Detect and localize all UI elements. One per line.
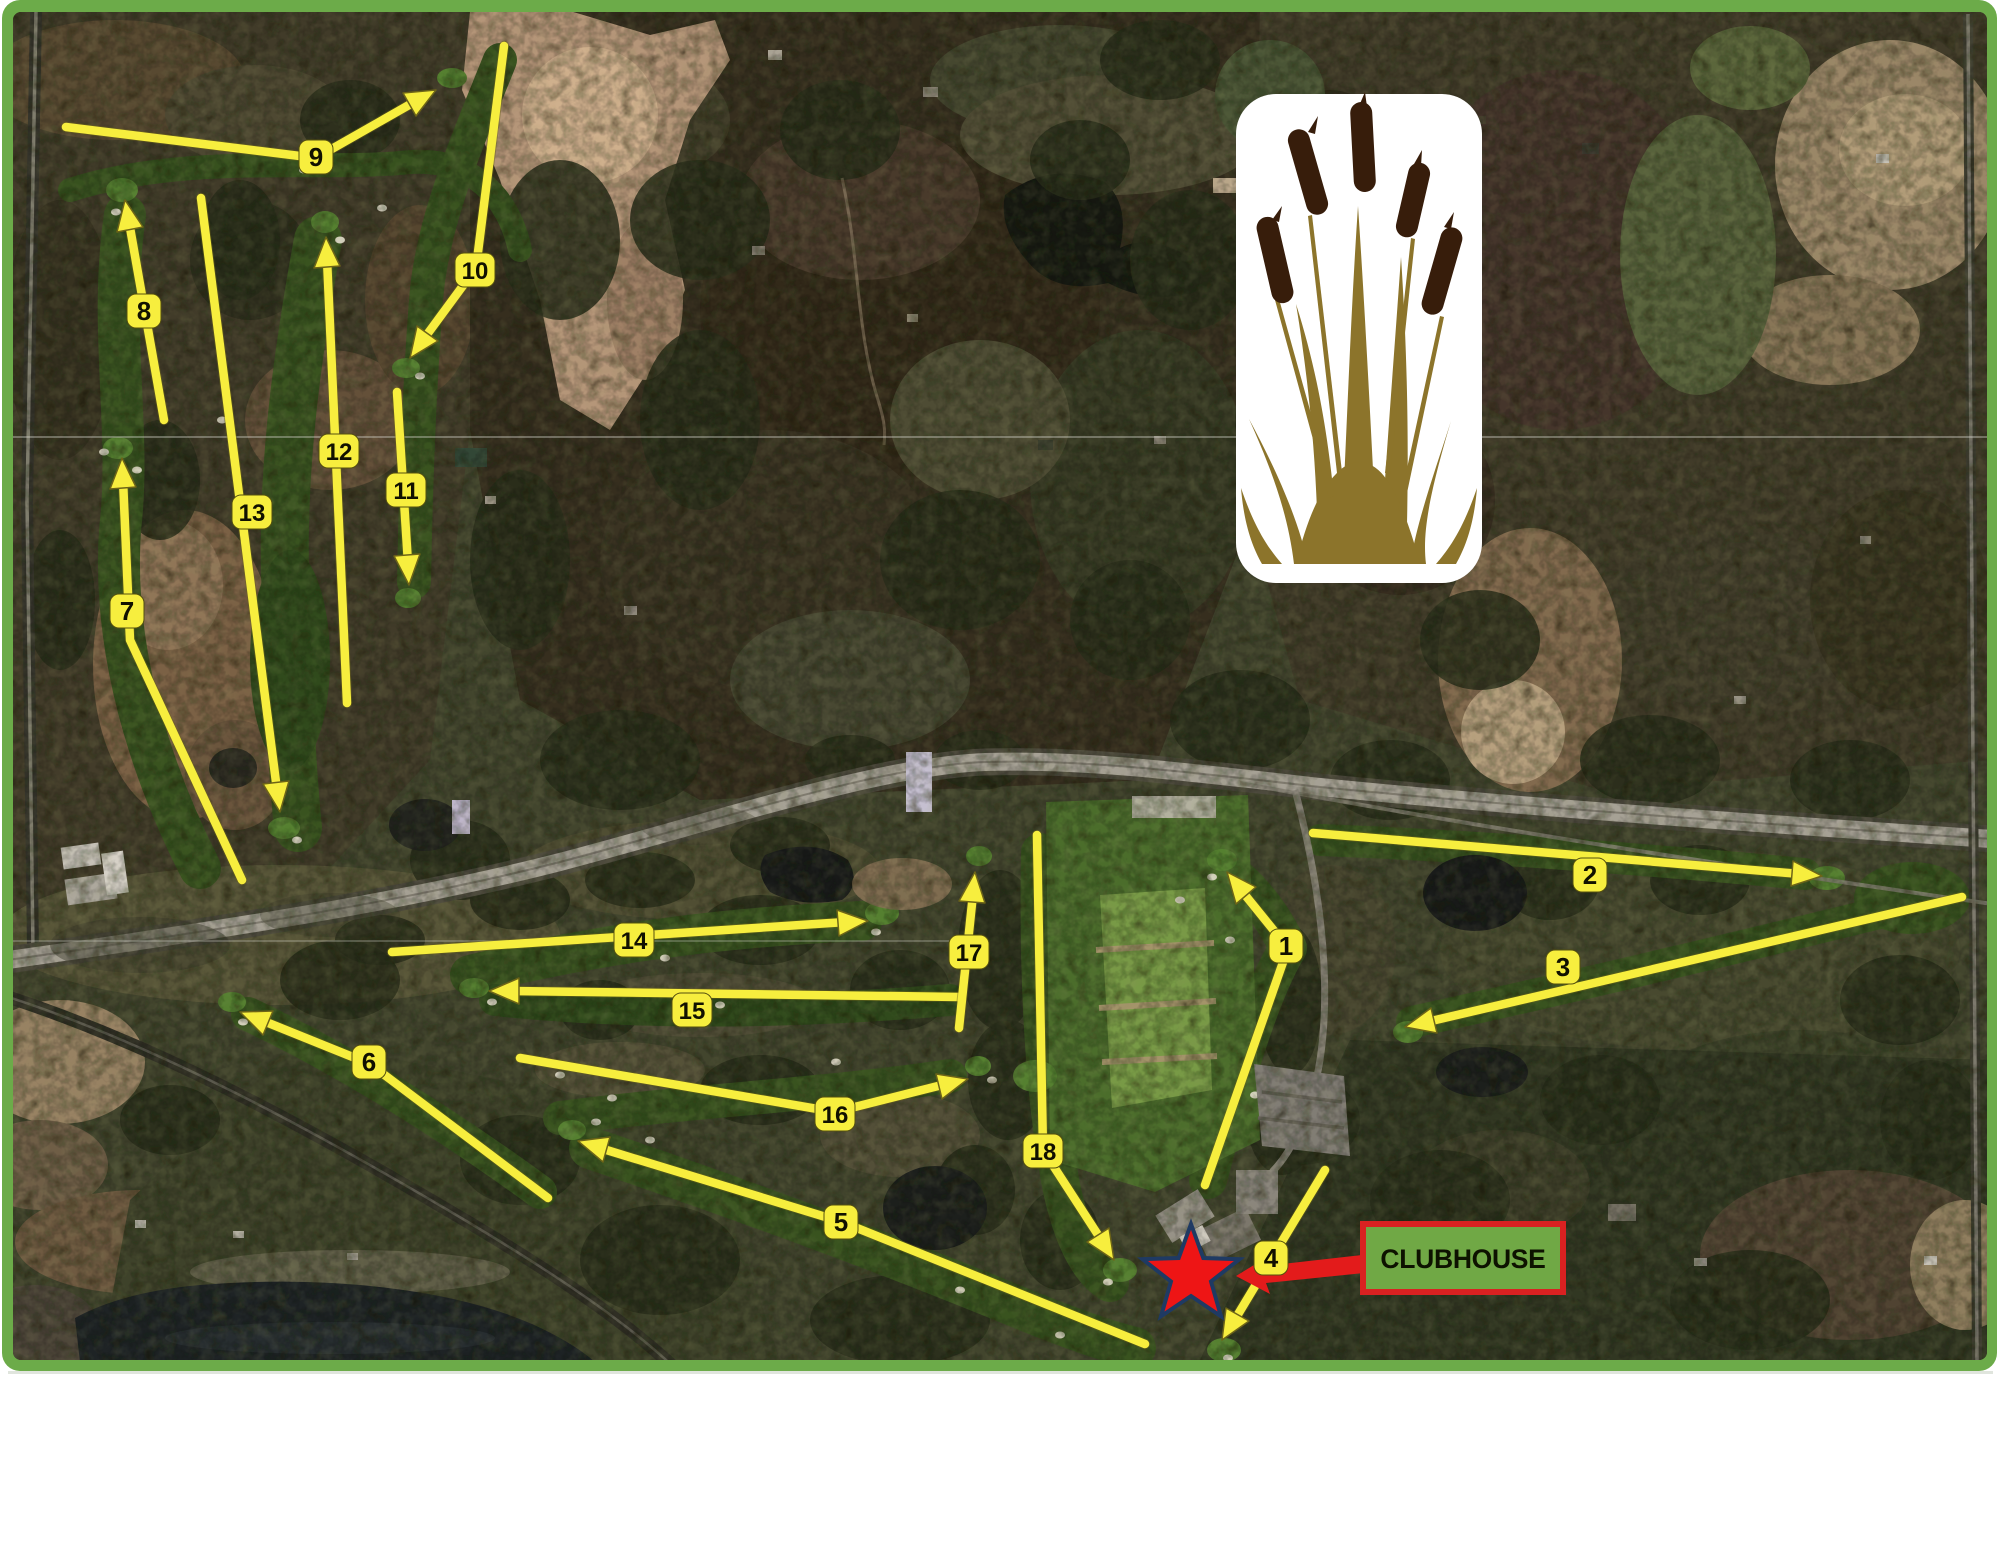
svg-text:7: 7 — [120, 596, 134, 626]
svg-text:5: 5 — [834, 1207, 848, 1237]
svg-text:14: 14 — [621, 928, 648, 955]
svg-text:6: 6 — [362, 1047, 376, 1077]
svg-text:CLUBHOUSE: CLUBHOUSE — [1380, 1244, 1545, 1274]
svg-text:13: 13 — [239, 500, 266, 527]
svg-text:9: 9 — [309, 142, 323, 172]
svg-text:15: 15 — [679, 998, 706, 1025]
svg-text:1: 1 — [1279, 931, 1293, 961]
svg-text:2: 2 — [1583, 860, 1597, 890]
svg-text:16: 16 — [822, 1102, 849, 1129]
svg-text:3: 3 — [1556, 952, 1570, 982]
svg-text:8: 8 — [137, 296, 151, 326]
svg-text:17: 17 — [956, 940, 983, 967]
svg-text:4: 4 — [1264, 1243, 1279, 1273]
svg-text:12: 12 — [326, 439, 353, 466]
svg-text:18: 18 — [1030, 1139, 1057, 1166]
svg-text:10: 10 — [462, 258, 489, 285]
svg-text:11: 11 — [393, 478, 418, 505]
